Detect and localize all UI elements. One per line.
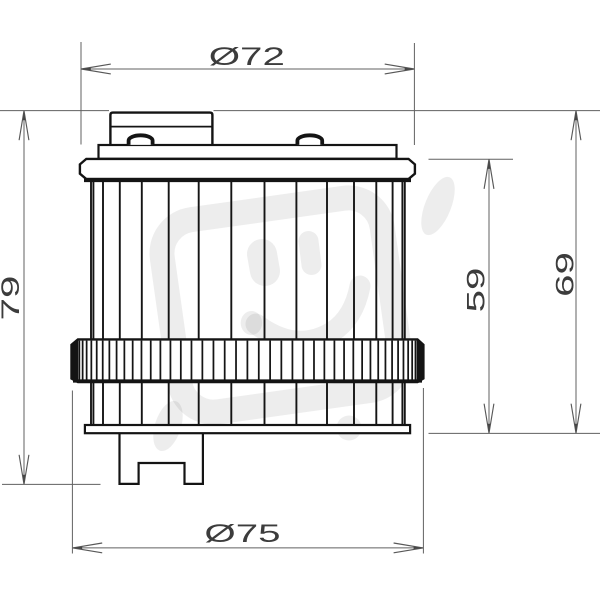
svg-text:Ø75: Ø75 bbox=[204, 520, 280, 548]
svg-text:59: 59 bbox=[463, 268, 491, 313]
svg-text:69: 69 bbox=[552, 252, 580, 297]
svg-text:79: 79 bbox=[0, 276, 25, 321]
svg-text:Ø72: Ø72 bbox=[209, 43, 285, 71]
